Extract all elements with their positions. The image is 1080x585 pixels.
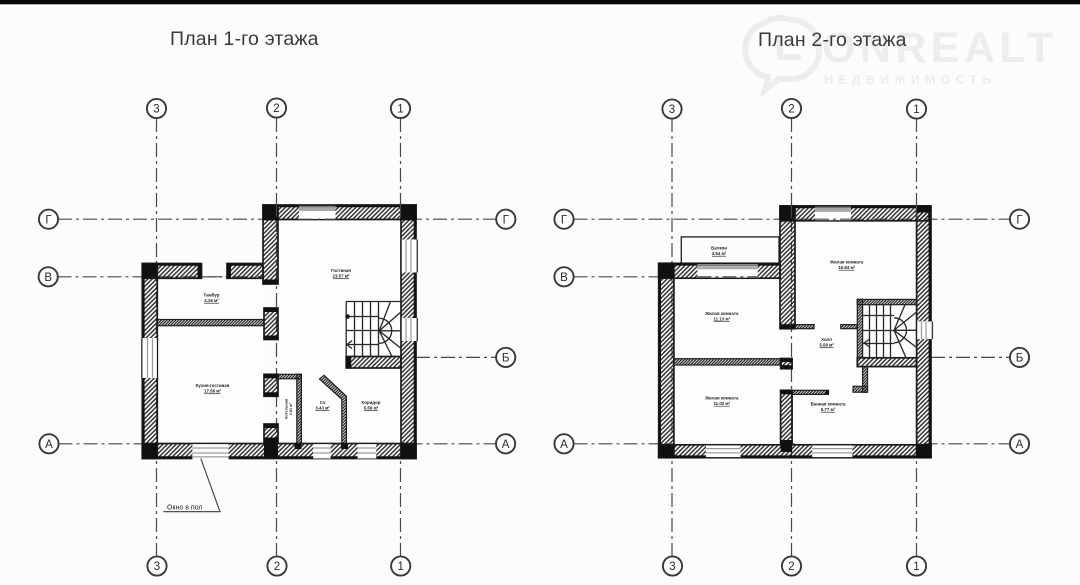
svg-text:2.01 м²: 2.01 м² — [289, 402, 293, 415]
svg-text:2: 2 — [273, 103, 279, 115]
svg-text:2: 2 — [788, 104, 794, 116]
svg-text:Г: Г — [503, 214, 510, 226]
svg-text:Коридор: Коридор — [362, 400, 381, 405]
svg-text:Холл: Холл — [821, 337, 832, 342]
svg-text:Жилая комната: Жилая комната — [704, 396, 739, 401]
svg-text:23.57 м²: 23.57 м² — [333, 274, 350, 279]
svg-text:План 1-го этажа: План 1-го этажа — [170, 28, 319, 50]
svg-text:3: 3 — [154, 561, 160, 573]
svg-text:17.56 м²: 17.56 м² — [204, 389, 221, 394]
svg-text:А: А — [502, 439, 510, 451]
svg-text:Б: Б — [502, 353, 510, 365]
svg-text:В: В — [44, 272, 52, 284]
svg-text:5.56 м²: 5.56 м² — [819, 343, 834, 348]
svg-text:3: 3 — [669, 104, 675, 116]
svg-text:1: 1 — [397, 104, 403, 116]
svg-text:4.16 м²: 4.16 м² — [204, 298, 219, 303]
svg-text:В: В — [560, 272, 568, 284]
svg-text:А: А — [45, 439, 53, 451]
svg-text:1: 1 — [397, 561, 403, 573]
svg-text:Сч: Сч — [320, 400, 326, 405]
svg-text:3.43 м²: 3.43 м² — [315, 406, 330, 411]
svg-text:5.56 м²: 5.56 м² — [364, 406, 379, 411]
svg-text:Кухня-гостиная: Кухня-гостиная — [196, 383, 230, 388]
svg-text:2: 2 — [788, 561, 794, 573]
svg-text:Г: Г — [1016, 214, 1023, 226]
svg-text:3: 3 — [153, 104, 159, 116]
svg-text:НЕДВИЖИМОСТЬ: НЕДВИЖИМОСТЬ — [824, 73, 996, 87]
svg-text:Гостиная: Гостиная — [331, 268, 351, 273]
svg-text:2: 2 — [274, 561, 280, 573]
svg-text:Котельная: Котельная — [285, 399, 289, 419]
svg-text:11.02 м²: 11.02 м² — [713, 401, 730, 406]
svg-text:Балкон: Балкон — [711, 246, 727, 251]
svg-text:Жилая комната: Жилая комната — [704, 311, 739, 316]
svg-text:Жилая комната: Жилая комната — [829, 260, 864, 265]
svg-text:Окно в пол: Окно в пол — [167, 505, 203, 512]
svg-text:3.54 м²: 3.54 м² — [712, 251, 727, 256]
svg-text:А: А — [1016, 439, 1024, 451]
svg-text:16.84 м²: 16.84 м² — [838, 265, 855, 270]
svg-text:3: 3 — [669, 561, 675, 573]
svg-text:11.13 м²: 11.13 м² — [713, 317, 730, 322]
svg-text:Б: Б — [1016, 353, 1024, 365]
svg-text:Тамбур: Тамбур — [204, 293, 220, 298]
svg-text:1: 1 — [913, 561, 919, 573]
svg-text:Г: Г — [561, 214, 568, 226]
svg-text:1: 1 — [913, 104, 919, 116]
svg-text:5.77 м²: 5.77 м² — [821, 407, 836, 412]
svg-text:А: А — [560, 439, 568, 451]
svg-text:Г: Г — [45, 214, 52, 226]
svg-text:План 2-го этажа: План 2-го этажа — [758, 29, 907, 51]
svg-text:Ванная комната: Ванная комната — [811, 402, 846, 407]
